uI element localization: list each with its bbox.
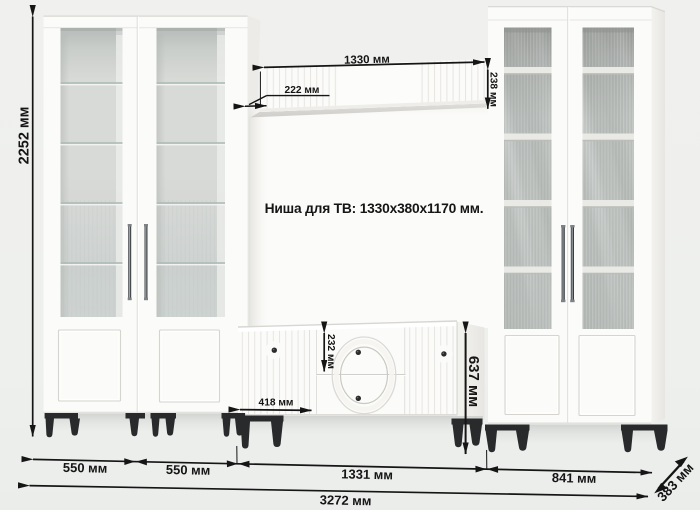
svg-text:3272 мм: 3272 мм [320,492,372,508]
svg-text:550 мм: 550 мм [63,460,108,476]
svg-text:2252 мм: 2252 мм [16,107,32,165]
svg-text:Ниша для ТВ: 1330х380х1170 мм.: Ниша для ТВ: 1330х380х1170 мм. [265,201,484,216]
svg-text:238 мм: 238 мм [488,72,499,107]
svg-text:1330 мм: 1330 мм [344,54,390,67]
svg-text:418 мм: 418 мм [259,398,294,409]
svg-text:550 мм: 550 мм [166,462,211,478]
svg-text:841 мм: 841 мм [552,470,597,486]
svg-text:1331 мм: 1331 мм [341,466,393,482]
svg-text:637 мм: 637 мм [465,356,482,407]
svg-text:232 мм: 232 мм [325,334,336,369]
svg-text:222 мм: 222 мм [285,85,320,96]
